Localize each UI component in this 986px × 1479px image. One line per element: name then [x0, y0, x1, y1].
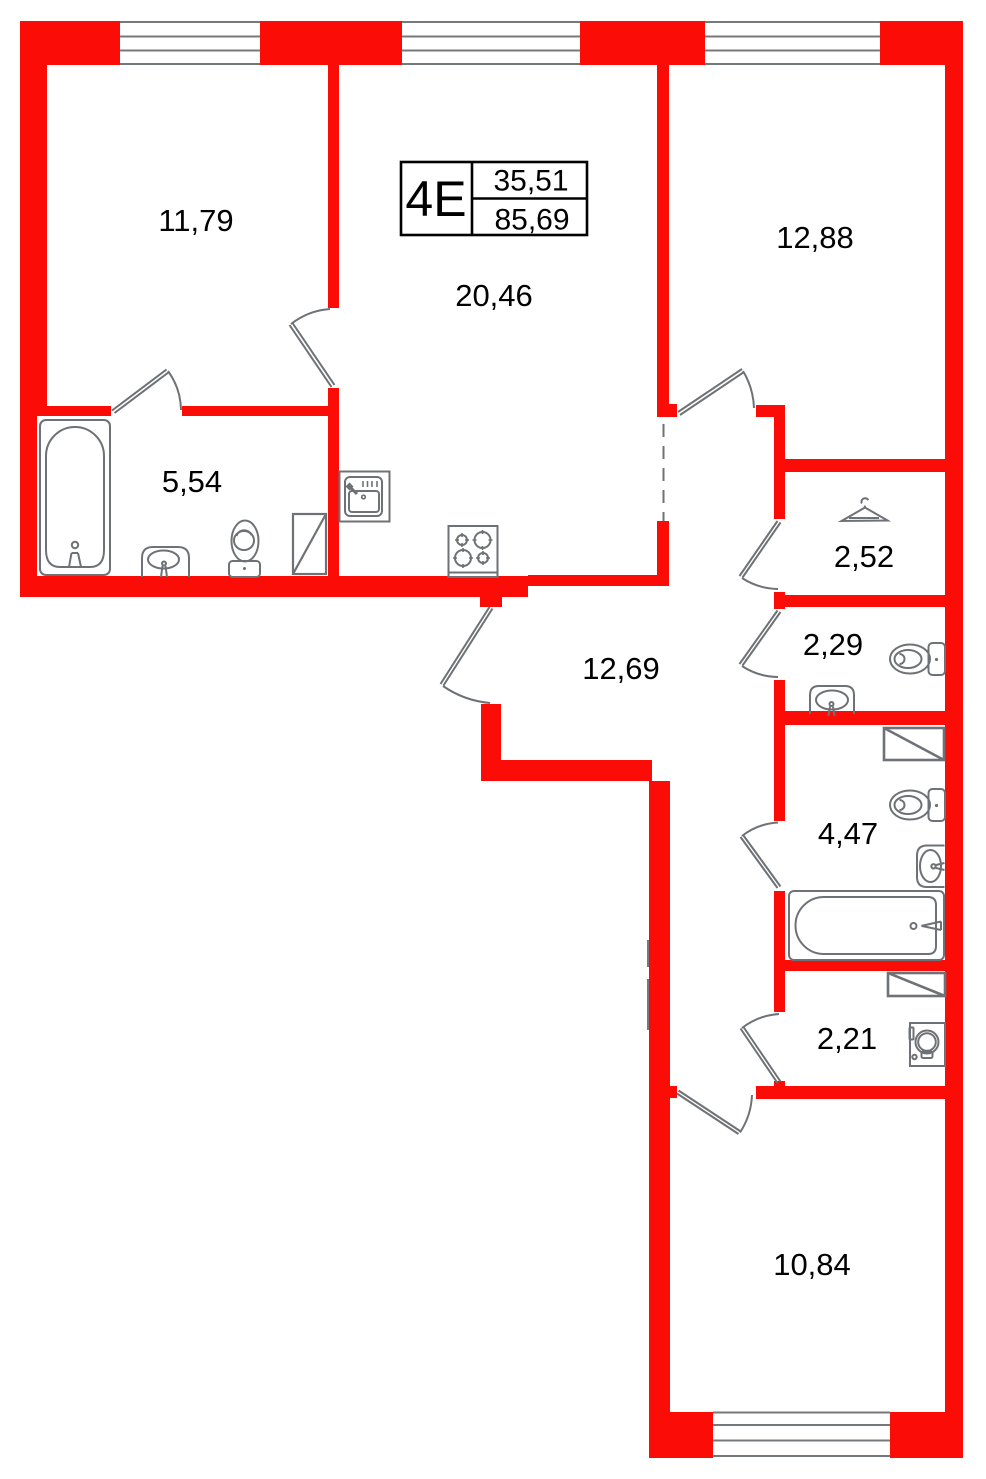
svg-text:85,69: 85,69 [494, 204, 569, 237]
svg-text:20,46: 20,46 [455, 278, 533, 313]
svg-text:4,47: 4,47 [818, 816, 878, 851]
svg-text:5,54: 5,54 [162, 464, 222, 499]
svg-text:2,29: 2,29 [803, 627, 863, 662]
svg-text:12,88: 12,88 [776, 220, 854, 255]
svg-text:11,79: 11,79 [158, 203, 233, 238]
svg-text:35,51: 35,51 [493, 165, 568, 198]
svg-text:10,84: 10,84 [773, 1247, 851, 1282]
svg-text:12,69: 12,69 [582, 651, 660, 686]
svg-text:4E: 4E [405, 171, 466, 227]
svg-text:2,52: 2,52 [834, 539, 894, 574]
svg-text:2,21: 2,21 [817, 1021, 877, 1056]
